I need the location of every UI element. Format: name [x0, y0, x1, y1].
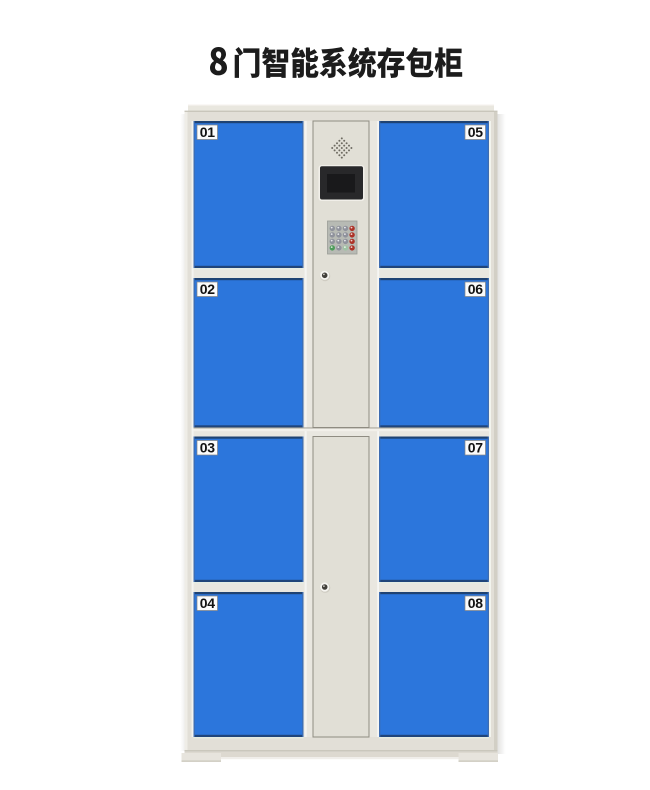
- svg-text:06: 06: [468, 281, 483, 297]
- svg-text:05: 05: [468, 124, 483, 140]
- svg-text:08: 08: [468, 595, 483, 611]
- svg-text:01: 01: [200, 124, 215, 140]
- svg-text:03: 03: [200, 440, 215, 456]
- svg-text:02: 02: [200, 281, 215, 297]
- svg-text:04: 04: [200, 595, 215, 611]
- svg-text:07: 07: [468, 440, 483, 456]
